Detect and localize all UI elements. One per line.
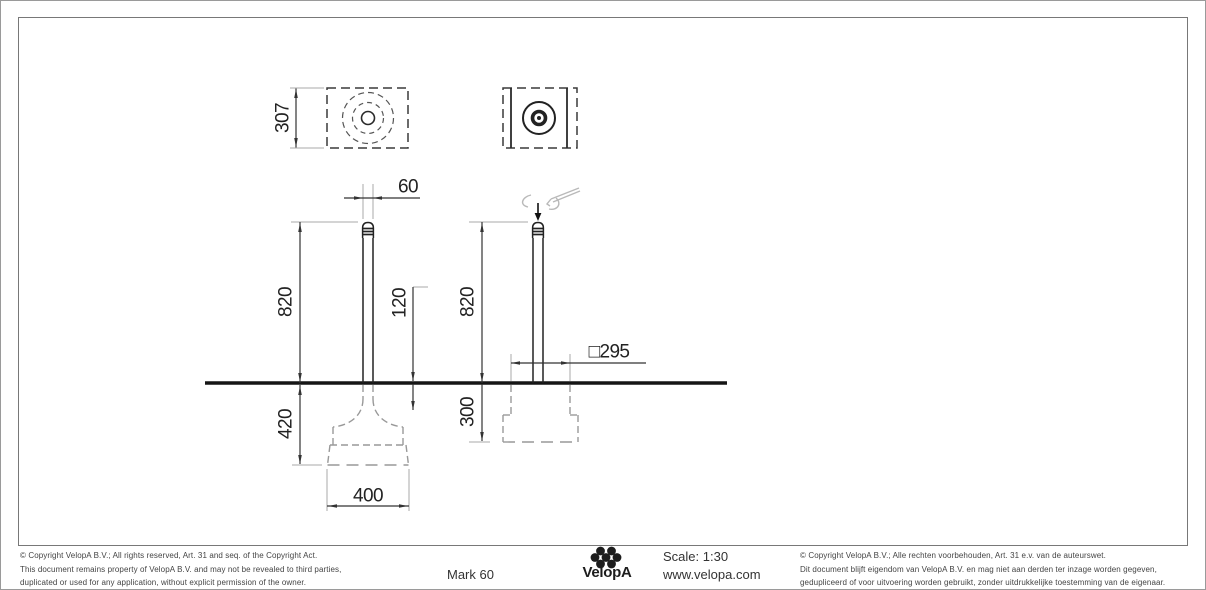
dim-307: [290, 88, 324, 148]
elevation-post-left: [363, 223, 374, 384]
dim-label-height-left: 820: [277, 287, 296, 317]
copyright-en-line1: © Copyright VelopA B.V.; All rights rese…: [20, 549, 341, 563]
copyright-en-line2: This document remains property of VelopA…: [20, 563, 341, 577]
scale-label: Scale: 1:30: [663, 549, 728, 564]
dim-label-plan-height: 307: [274, 103, 293, 133]
plan-view-left: [327, 88, 408, 148]
dim-820-left: [291, 222, 358, 383]
dim-120: [411, 287, 428, 410]
plan-view-right: [503, 88, 577, 148]
dim-label-depth-right: 300: [459, 397, 478, 427]
dim-label-height-right: 820: [459, 287, 478, 317]
dim-label-post-width: 60: [398, 178, 418, 197]
dim-label-inset-depth: 120: [391, 288, 410, 318]
dim-label-foundation-square: □295: [589, 343, 630, 362]
elevation-post-right: [533, 223, 544, 384]
dim-label-depth-left: 420: [277, 409, 296, 439]
foundation-left: [328, 385, 409, 465]
dim-label-foundation-width: 400: [353, 487, 383, 506]
copyright-nl-line1: © Copyright VelopA B.V.; Alle rechten vo…: [800, 549, 1165, 563]
dim-420: [292, 385, 322, 465]
technical-drawing: [0, 0, 1206, 590]
key-tool-icon: [523, 188, 580, 209]
product-name: Mark 60: [447, 567, 494, 582]
drawing-sheet: 307 60 820 120 820 □295 420 300 400 © Co…: [0, 0, 1206, 590]
foundation-right: [503, 385, 578, 442]
website-link[interactable]: www.velopa.com: [663, 567, 761, 582]
install-arrow-icon: [535, 203, 542, 221]
copyright-nl-line3: gedupliceerd of voor uitvoering worden g…: [800, 576, 1165, 590]
copyright-en-line3: duplicated or used for any application, …: [20, 576, 341, 590]
copyright-nl-line2: Dit document blijft eigendom van VelopA …: [800, 563, 1165, 577]
copyright-notice-en: © Copyright VelopA B.V.; All rights rese…: [20, 549, 341, 590]
brand-logo-text: VelopA: [578, 564, 636, 581]
copyright-notice-nl: © Copyright VelopA B.V.; Alle rechten vo…: [800, 549, 1165, 590]
